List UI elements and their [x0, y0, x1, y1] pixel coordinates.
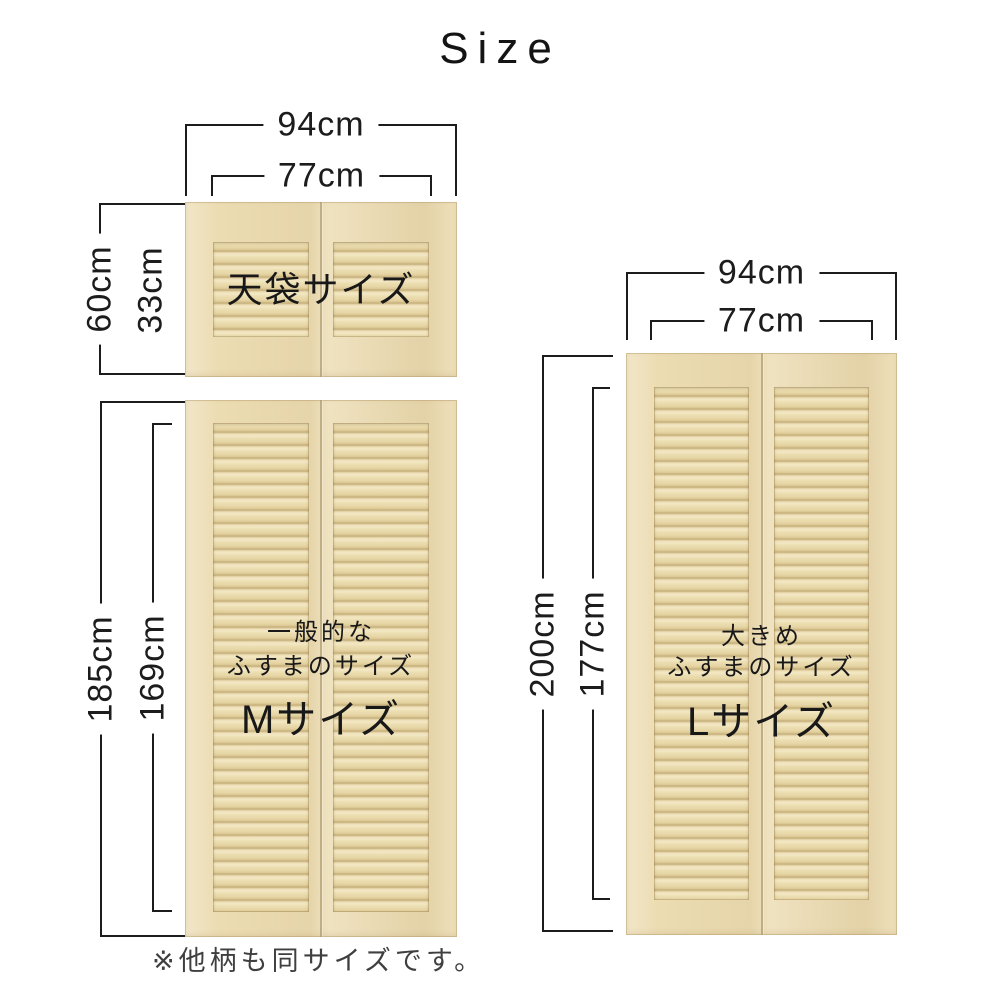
- dim-m-height-outer-label: 185cm: [82, 603, 121, 734]
- size-diagram: Size 94cm 77cm 60cm 33cm 天袋サイズ: [0, 0, 1000, 1000]
- dim-left-width-outer-label: 94cm: [263, 106, 378, 145]
- dim-tenbukuro-height-inner-label: 33cm: [132, 234, 171, 345]
- dimension-line: [430, 175, 432, 196]
- l-door-desc-line2: ふすまのサイズ: [626, 651, 897, 685]
- dimension-line: [152, 910, 172, 912]
- footer-note: ※他柄も同サイズです。: [152, 942, 485, 980]
- dim-l-height-inner-label: 177cm: [574, 578, 613, 709]
- dimension-line: [895, 272, 897, 340]
- dim-left-width-inner-label: 77cm: [264, 157, 379, 196]
- dimension-line: [542, 930, 613, 932]
- dim-m-height-inner-label: 169cm: [134, 602, 173, 733]
- dimension-line: [650, 320, 652, 340]
- dim-right-width-outer-label: 94cm: [704, 254, 819, 293]
- dim-right-width-inner-label: 77cm: [704, 302, 819, 341]
- dimension-line: [592, 387, 610, 389]
- dimension-line: [100, 401, 185, 403]
- m-door-size-label: Mサイズ: [185, 694, 457, 746]
- dimension-line: [100, 935, 185, 937]
- page-title: Size: [0, 24, 1000, 74]
- l-door-desc-line1: 大きめ: [626, 620, 897, 654]
- dimension-line: [99, 203, 185, 205]
- m-door-desc-line1: 一般的な: [185, 616, 457, 650]
- dimension-line: [455, 124, 457, 196]
- tenbukuro-door-image: 天袋サイズ: [185, 202, 457, 377]
- m-door-desc-line2: ふすまのサイズ: [185, 650, 457, 684]
- dimension-line: [211, 175, 213, 196]
- m-door-image: 一般的な ふすまのサイズ Mサイズ: [185, 400, 457, 937]
- l-door-image: 大きめ ふすまのサイズ Lサイズ: [626, 353, 897, 935]
- tenbukuro-door-label: 天袋サイズ: [185, 268, 457, 312]
- dimension-line: [626, 272, 628, 340]
- dimension-line: [185, 124, 187, 196]
- dim-tenbukuro-height-outer-label: 60cm: [81, 233, 120, 344]
- dimension-line: [542, 355, 613, 357]
- l-door-size-label: Lサイズ: [626, 696, 897, 748]
- dimension-line: [152, 423, 172, 425]
- dimension-line: [592, 898, 610, 900]
- dim-l-height-outer-label: 200cm: [524, 578, 563, 709]
- dimension-line: [871, 320, 873, 340]
- dimension-line: [99, 373, 185, 375]
